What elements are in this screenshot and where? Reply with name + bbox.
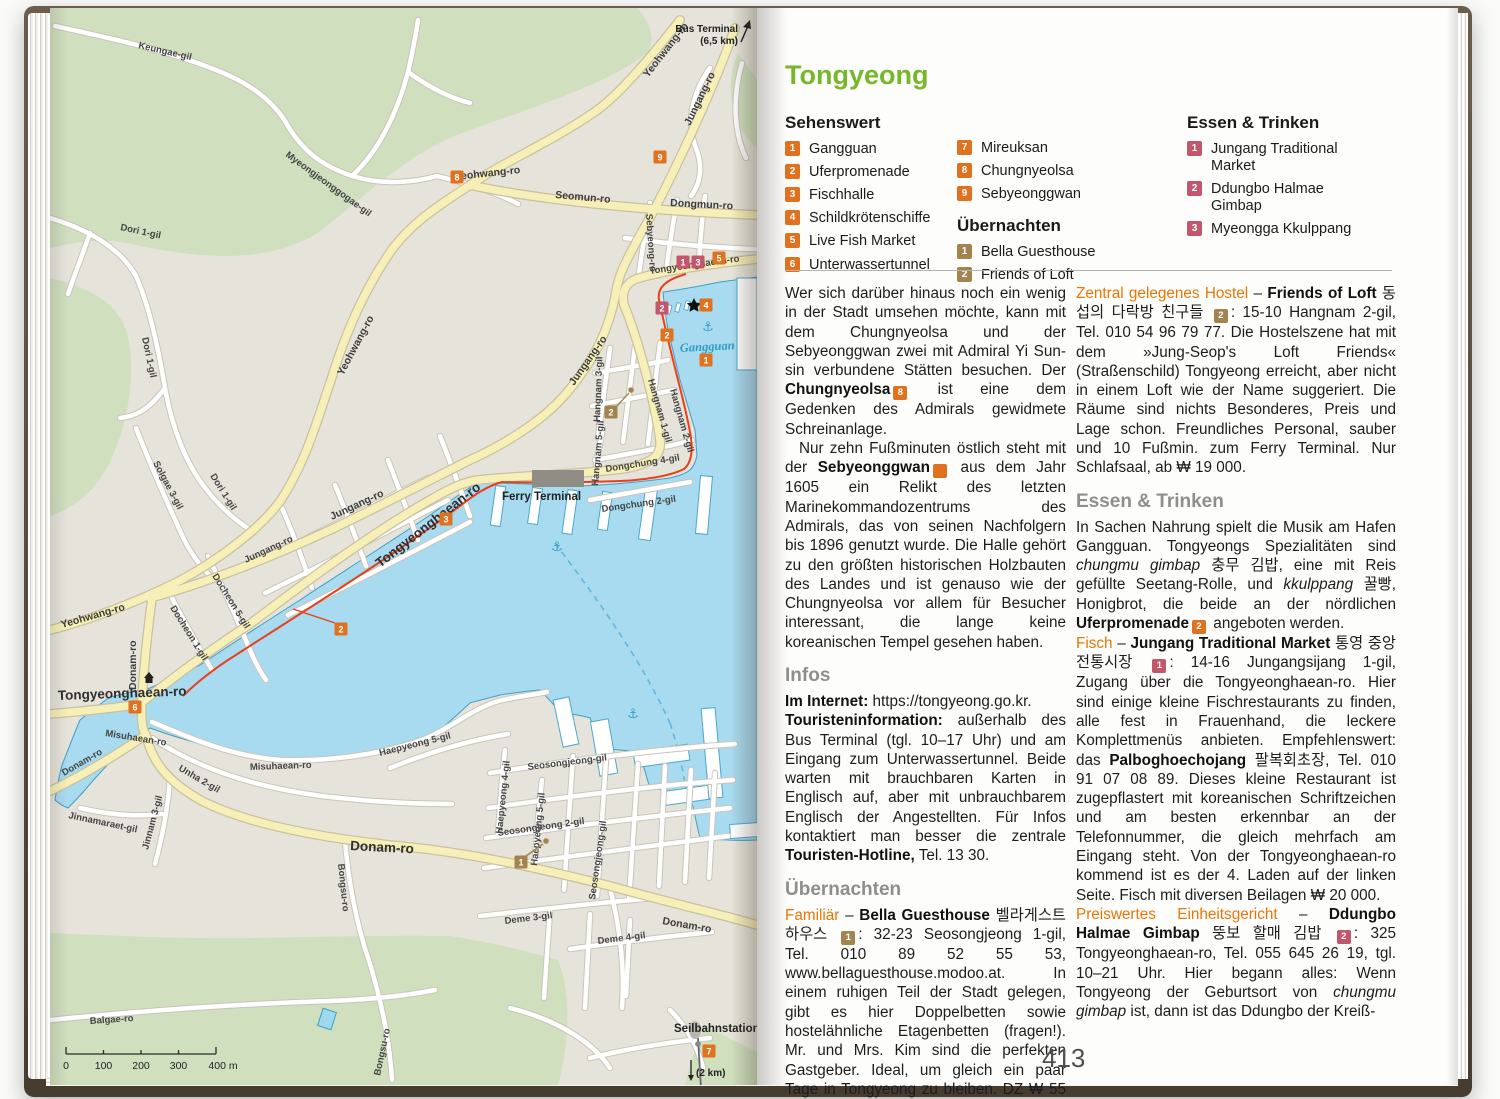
legend-item: 1Bella Guesthouse	[957, 244, 1187, 261]
marker-sight-2-south: 2	[335, 623, 348, 636]
paragraph: Zentral gelegenes Hostel – Friends of Lo…	[1076, 284, 1396, 478]
inline-marker-8: 8	[893, 386, 907, 400]
tongyeong-map: ⚓ ⚓ ⚓ Keungae-gil Myeongjeonggogae-gil	[50, 8, 757, 1085]
label-seilbahn-distance: (2 km)	[696, 1068, 725, 1079]
svg-text:1: 1	[680, 258, 685, 268]
text-page: Tongyeong Sehenswert 1Gangguan 2Uferprom…	[757, 8, 1458, 1085]
sight-5-badge: 5	[785, 233, 800, 248]
book-spread: ⚓ ⚓ ⚓ Keungae-gil Myeongjeonggogae-gil	[0, 0, 1500, 1099]
paragraph: Familiär – Bella Guesthouse 벨라게스트하우스 1: …	[785, 906, 1066, 1099]
svg-text:7: 7	[706, 1047, 711, 1057]
label-misuhaean-ro-2: Misuhaean-ro	[250, 760, 312, 773]
legend-item: 5Live Fish Market	[785, 233, 957, 250]
inline-marker-hotel-1: 1	[841, 931, 855, 945]
inline-marker-9: 9	[933, 464, 947, 478]
svg-text:⚓: ⚓	[627, 707, 639, 722]
legend-header-sehenswert: Sehenswert	[785, 113, 957, 133]
subheading-uebernachten: Übernachten	[785, 880, 1066, 901]
label-ferry-terminal: Ferry Terminal	[502, 491, 581, 503]
inline-marker-2: 2	[1192, 620, 1206, 634]
legend-item: 3Fischhalle	[785, 187, 957, 204]
marker-sight-8: 8	[451, 171, 464, 184]
food-3-badge: 3	[1187, 221, 1202, 236]
legend-header-uebernachten: Übernachten	[957, 216, 1187, 236]
hotel-1-badge: 1	[957, 244, 972, 259]
marker-hotel-1: 1	[515, 856, 528, 869]
page-title: Tongyeong	[785, 60, 928, 91]
legend-item: 7Mireuksan	[957, 140, 1187, 157]
svg-text:8: 8	[454, 173, 459, 183]
label-bus-terminal: Bus Terminal	[675, 24, 738, 35]
text-column-right: Zentral gelegenes Hostel – Friends of Lo…	[1076, 284, 1396, 1021]
paragraph: Touristeninformation: außerhalb des Bus …	[785, 711, 1066, 865]
legend-item: 8Chungnyeolsa	[957, 163, 1187, 180]
legend-sights-column: Sehenswert 1Gangguan 2Uferpromenade 3Fis…	[785, 113, 957, 291]
legend-middle-column: 7Mireuksan 8Chungnyeolsa 9Sebyeonggwan Ü…	[957, 113, 1187, 291]
svg-text:1: 1	[703, 356, 708, 366]
marker-hotel-2: 2	[605, 406, 618, 419]
svg-text:3: 3	[443, 515, 448, 525]
legend-item: 6Unterwassertunnel	[785, 257, 957, 274]
paragraph: Fisch – Jungang Traditional Market 통영 중앙…	[1076, 634, 1396, 905]
legend-divider	[785, 270, 1392, 271]
svg-text:2: 2	[338, 625, 343, 635]
lead-in-fisch: Fisch	[1076, 635, 1113, 652]
paragraph: Wer sich darüber hinaus noch ein wenig i…	[785, 284, 1066, 439]
label-bus-terminal-distance: (6,5 km)	[700, 36, 738, 47]
label-seilbahnstation: Seilbahnstation	[674, 1023, 757, 1035]
scale-300: 300	[170, 1060, 188, 1072]
svg-text:5: 5	[716, 254, 721, 264]
legend-item: 3Myeongga Kkulppang	[1187, 221, 1425, 238]
inline-marker-food-1: 1	[1152, 659, 1166, 673]
marker-sight-1: 1	[700, 354, 713, 367]
paragraph: Im Internet: https://tongyeong.go.kr.	[785, 692, 1066, 711]
scale-100: 100	[95, 1060, 113, 1072]
label-hangnam-3-gil: Hangnam 3-gil	[592, 356, 605, 422]
sight-3-badge: 3	[785, 187, 800, 202]
paragraph: In Sachen Nahrung spielt die Musik am Ha…	[1076, 518, 1396, 634]
scale-0: 0	[63, 1060, 69, 1072]
marker-sight-5: 5	[713, 252, 726, 265]
marker-food-1: 1	[677, 256, 690, 269]
svg-text:6: 6	[132, 703, 137, 713]
svg-text:2: 2	[608, 408, 613, 418]
marker-sight-3: 3	[440, 513, 453, 526]
sight-9-badge: 9	[957, 186, 972, 201]
paragraph: Nur zehn Fußminuten östlich steht mit de…	[785, 439, 1066, 652]
lead-in-hostel: Zentral gelegenes Hostel	[1076, 285, 1248, 302]
subheading-infos: Infos	[785, 666, 1066, 687]
sight-2-badge: 2	[785, 164, 800, 179]
sight-1-badge: 1	[785, 141, 800, 156]
svg-text:⚓: ⚓	[702, 320, 714, 335]
lead-in-einheitsgericht: Preiswertes Einheitsgericht	[1076, 906, 1278, 923]
legend-item: 9Sebyeonggwan	[957, 186, 1187, 203]
legend-header-essen: Essen & Trinken	[1187, 113, 1425, 133]
ferry-terminal-building	[532, 470, 584, 487]
marker-sight-2-north: 2	[661, 329, 674, 342]
legend-food-column: Essen & Trinken 1Jungang Traditional Mar…	[1187, 113, 1425, 291]
label-gangguan-bay: Gangguan	[679, 338, 735, 355]
svg-text:9: 9	[657, 153, 662, 163]
scale-400: 400 m	[208, 1060, 237, 1072]
legend-item: 1Gangguan	[785, 141, 957, 158]
marker-food-3: 3	[692, 256, 705, 269]
food-1-badge: 1	[1187, 141, 1202, 156]
svg-text:2: 2	[664, 331, 669, 341]
legend-item: 2Ddungbo Halmae Gimbap	[1187, 181, 1425, 215]
page-stack-left	[28, 13, 50, 1079]
paragraph: Preiswertes Einheitsgericht – Ddungbo Ha…	[1076, 905, 1396, 1021]
inline-marker-hotel-2: 2	[1214, 309, 1228, 323]
sight-7-badge: 7	[957, 140, 972, 155]
scale-200: 200	[132, 1060, 150, 1072]
label-donam-ro-vertical: Donam-ro	[127, 640, 139, 690]
map-page: ⚓ ⚓ ⚓ Keungae-gil Myeongjeonggogae-gil	[50, 8, 757, 1085]
lead-in-familiaer: Familiär	[785, 907, 839, 924]
legend-item: 4Schildkrötenschiffe	[785, 210, 957, 227]
marker-sight-4: 4	[700, 299, 713, 312]
svg-text:2: 2	[659, 304, 664, 314]
inline-marker-food-2: 2	[1337, 930, 1351, 944]
page-number: 413	[1042, 1043, 1085, 1074]
sight-4-badge: 4	[785, 210, 800, 225]
text-column-left: Wer sich darüber hinaus noch ein wenig i…	[785, 284, 1066, 1099]
legend-item: 1Jungang Traditional Market	[1187, 141, 1425, 175]
food-2-badge: 2	[1187, 181, 1202, 196]
marker-sight-9: 9	[654, 151, 667, 164]
legend-item: 2Uferpromenade	[785, 164, 957, 181]
svg-text:3: 3	[695, 258, 700, 268]
map-legend: Sehenswert 1Gangguan 2Uferpromenade 3Fis…	[785, 113, 1425, 291]
svg-text:4: 4	[703, 301, 708, 311]
marker-sight-6: 6	[129, 701, 142, 714]
subheading-essen-trinken: Essen & Trinken	[1076, 492, 1396, 513]
sight-8-badge: 8	[957, 163, 972, 178]
svg-text:⚓: ⚓	[551, 540, 563, 555]
svg-text:1: 1	[518, 858, 523, 868]
marker-sight-7: 7	[703, 1045, 716, 1058]
marker-food-2: 2	[656, 302, 669, 315]
